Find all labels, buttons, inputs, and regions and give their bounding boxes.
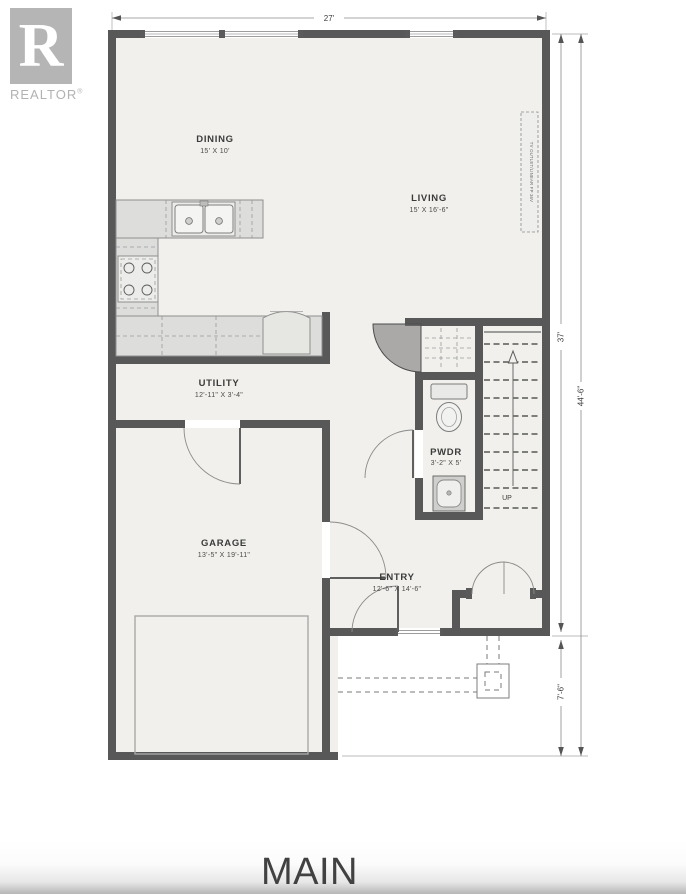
dim-main-height-label: 37' — [557, 331, 566, 342]
powder-label: PWDR — [430, 447, 462, 458]
stove-range — [118, 256, 158, 302]
dining-label: DINING — [196, 134, 233, 145]
dim-porch-label: 7'-6" — [557, 684, 566, 700]
refrigerator — [263, 312, 310, 355]
dining-dims: 15' X 10' — [200, 148, 230, 155]
dim-top-label: 27' — [324, 14, 335, 23]
window-living — [405, 30, 458, 38]
window-dining — [140, 30, 303, 38]
stairs-up-label: UP — [502, 495, 512, 502]
powder-sink — [433, 476, 465, 511]
dimension-arrow — [112, 15, 121, 21]
fireplace: TV OUTLET/LINEAR FP 36V — [521, 112, 538, 232]
porch-post — [477, 664, 509, 698]
floorplan-page: R REALTOR® — [0, 0, 686, 894]
living-dims: 15' X 16'-6" — [409, 207, 448, 214]
utility-label: UTILITY — [199, 378, 240, 389]
floorplan-drawing: TV OUTLET/LINEAR FP 36V UP — [0, 0, 686, 894]
floor-title: MAIN — [261, 851, 358, 894]
porch — [338, 636, 509, 698]
garage-dims: 13'-5" X 19'-11" — [198, 552, 251, 559]
entry-label: ENTRY — [379, 572, 414, 583]
garage-label: GARAGE — [201, 538, 247, 549]
utility-dims: 12'-11" X 3'-4" — [195, 392, 243, 399]
dimension-arrow — [537, 15, 546, 21]
entry-dims: 12'-6" X 14'-6" — [373, 586, 422, 593]
kitchen-sink — [172, 201, 235, 236]
living-label: LIVING — [411, 193, 447, 204]
powder-dims: 3'-2" X 5' — [431, 460, 462, 467]
fireplace-annotation: TV OUTLET/LINEAR FP 36V — [529, 142, 534, 202]
dim-total-height-label: 44'-6" — [577, 386, 586, 407]
